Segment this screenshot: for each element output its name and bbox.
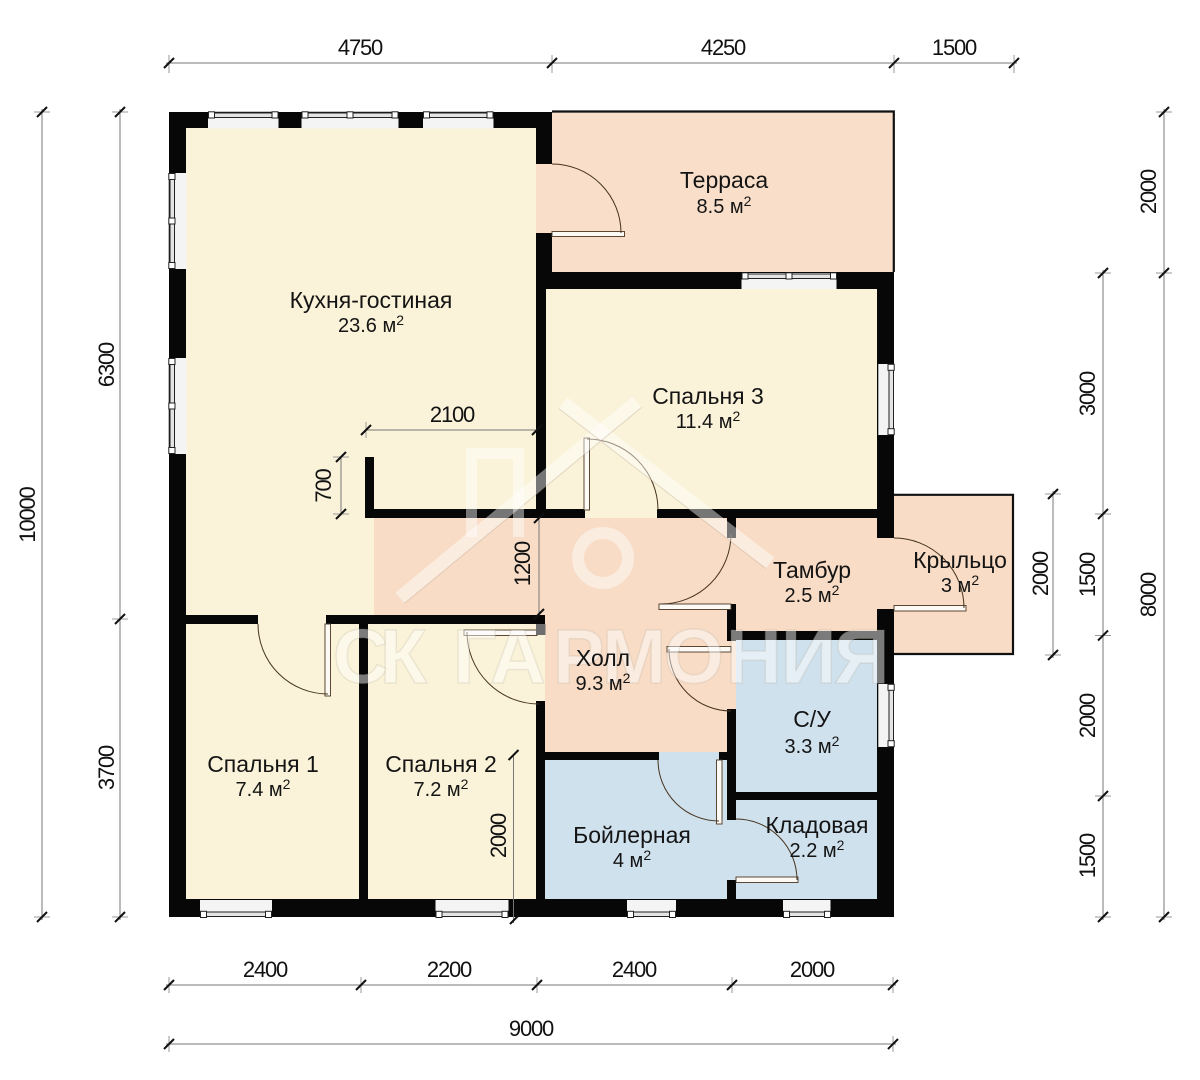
svg-text:Тамбур: Тамбур	[773, 557, 851, 583]
svg-text:9.3 м2: 9.3 м2	[576, 670, 631, 695]
svg-text:1500: 1500	[932, 35, 977, 60]
svg-text:23.6 м2: 23.6 м2	[338, 312, 404, 337]
svg-text:4250: 4250	[701, 35, 746, 60]
svg-text:2.5 м2: 2.5 м2	[785, 582, 840, 607]
svg-text:Спальня 2: Спальня 2	[385, 751, 497, 777]
svg-text:Спальня 1: Спальня 1	[207, 751, 319, 777]
svg-text:11.4 м2: 11.4 м2	[676, 408, 741, 433]
svg-text:8.5 м2: 8.5 м2	[697, 193, 752, 218]
svg-text:2100: 2100	[430, 402, 475, 427]
svg-text:3.3 м2: 3.3 м2	[785, 733, 840, 758]
svg-text:7.4 м2: 7.4 м2	[236, 776, 291, 801]
svg-text:2000: 2000	[1028, 551, 1053, 596]
svg-text:Крыльцо: Крыльцо	[913, 547, 1007, 573]
svg-text:10000: 10000	[15, 486, 40, 542]
svg-text:Бойлерная: Бойлерная	[573, 822, 691, 848]
svg-text:3700: 3700	[94, 745, 119, 790]
svg-text:Холл: Холл	[576, 645, 630, 671]
svg-text:2000: 2000	[1136, 169, 1161, 214]
svg-text:1200: 1200	[510, 541, 535, 586]
svg-text:2000: 2000	[1075, 693, 1100, 738]
svg-text:2400: 2400	[612, 957, 657, 982]
svg-text:Спальня 3: Спальня 3	[652, 383, 764, 409]
svg-text:2400: 2400	[243, 957, 288, 982]
svg-text:8000: 8000	[1136, 572, 1161, 617]
svg-text:6300: 6300	[94, 342, 119, 387]
svg-text:2200: 2200	[427, 957, 472, 982]
svg-text:2000: 2000	[790, 957, 835, 982]
svg-text:С/У: С/У	[793, 706, 831, 732]
svg-text:Кладовая: Кладовая	[765, 812, 868, 838]
svg-text:2.2 м2: 2.2 м2	[790, 837, 845, 862]
svg-text:1500: 1500	[1075, 552, 1100, 597]
svg-text:3000: 3000	[1075, 371, 1100, 416]
svg-text:2000: 2000	[486, 813, 511, 858]
svg-text:4750: 4750	[338, 35, 383, 60]
svg-text:1500: 1500	[1075, 833, 1100, 878]
svg-text:700: 700	[311, 468, 336, 502]
svg-text:7.2 м2: 7.2 м2	[414, 776, 469, 801]
svg-text:Кухня-гостиная: Кухня-гостиная	[290, 287, 453, 313]
svg-text:9000: 9000	[509, 1016, 554, 1041]
svg-text:Терраса: Терраса	[680, 167, 768, 193]
